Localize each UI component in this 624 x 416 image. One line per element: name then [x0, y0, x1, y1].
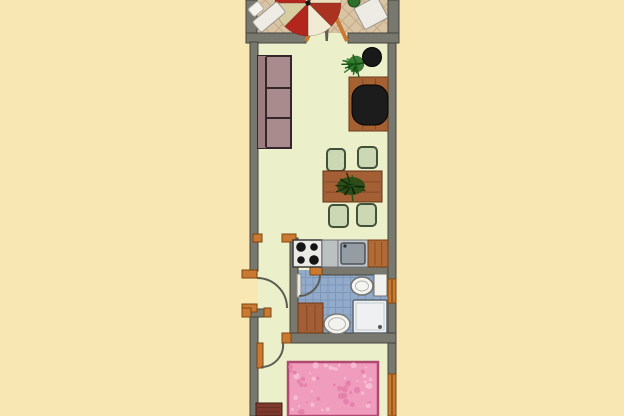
bathroom-cabinet [298, 303, 323, 333]
bed-texture-dot [349, 391, 352, 394]
bed-texture-dot [297, 380, 301, 384]
dining-chair-1 [327, 149, 345, 171]
floor-plan [0, 0, 624, 416]
bed-texture-dot [311, 390, 313, 392]
stove-burner-2 [310, 243, 318, 251]
balcony-parapet-right [348, 33, 399, 43]
bed-texture-dot [351, 362, 357, 368]
bed [288, 362, 378, 416]
dining-chair-2 [358, 147, 377, 168]
bed-texture-dot [367, 402, 369, 404]
bed-texture-dot [369, 378, 372, 381]
bathroom-bottom-wall [290, 333, 396, 343]
desk-chair [352, 85, 388, 125]
washbasin [324, 314, 350, 334]
bed-texture-dot [324, 364, 328, 368]
bed-texture-dot [293, 395, 298, 400]
kitchen-counter-wood [368, 240, 388, 267]
bed-texture-dot [344, 377, 346, 379]
stub-wall-cap-left [242, 308, 251, 317]
sofa-backrest [258, 56, 266, 148]
bed-texture-dot [290, 370, 293, 373]
bed-texture-dot [335, 367, 338, 370]
bed-texture-dot [333, 383, 336, 386]
balcony-plant [348, 0, 360, 7]
bed-texture-dot [321, 409, 324, 412]
corridor-jamb-left [253, 234, 262, 242]
dining-chair-3 [329, 205, 348, 227]
bed-texture-dot [301, 377, 305, 381]
entry-door-jamb-top [242, 270, 257, 278]
stove-burner-1 [296, 242, 306, 252]
bed-texture-dot [299, 383, 304, 388]
bed-texture-dot [361, 369, 365, 373]
bed-texture-dot [316, 397, 320, 401]
bed-texture-dot [341, 393, 347, 399]
dining-chair-4 [357, 204, 376, 226]
bedroom-door-jamb [282, 333, 291, 343]
bed-texture-dot [298, 405, 300, 407]
bed-texture-dot [309, 372, 311, 374]
bed-texture-dot [363, 374, 367, 378]
bed-texture-dot [337, 386, 342, 391]
bed-texture-dot [350, 402, 355, 407]
bed-texture-dot [312, 362, 318, 368]
bedroom-door-panel [257, 343, 263, 368]
bed-texture-dot [291, 408, 294, 411]
bed-texture-dot [367, 383, 373, 389]
patio-umbrella-pole [305, 0, 310, 5]
stove-burner-4 [309, 255, 319, 265]
bed-texture-dot [310, 403, 314, 407]
bed-texture-dot [311, 377, 316, 382]
bed-texture-dot [364, 380, 367, 383]
bed-texture-dot [326, 407, 330, 411]
shower-drain [378, 325, 382, 329]
bed-texture-dot [288, 364, 293, 369]
bed-texture-dot [356, 380, 358, 382]
bed-texture-dot [354, 387, 360, 393]
bed-texture-dot [342, 386, 348, 392]
bed-texture-dot [316, 377, 319, 380]
bed-texture-dot [304, 383, 308, 387]
toilet-cistern [374, 274, 387, 296]
sink-faucet [343, 244, 346, 247]
toilet-bowl [351, 277, 373, 295]
side-stool [363, 48, 382, 67]
bed-texture-dot [306, 401, 308, 403]
stove-burner-3 [297, 256, 305, 264]
patio-umbrella-panel [275, 0, 308, 3]
bed-texture-dot [365, 366, 367, 368]
bed-texture-dot [361, 391, 364, 394]
kitchen-counter [322, 240, 338, 267]
shower-tray [353, 300, 387, 333]
bed-texture-dot [328, 365, 333, 370]
screenshot-root [0, 0, 624, 416]
bed-texture-dot [339, 364, 341, 366]
bed-texture-dot [345, 381, 351, 387]
right-wall-upper [388, 43, 396, 279]
bed-texture-dot [343, 399, 349, 405]
dresser [256, 403, 282, 416]
patio-umbrella-panel [308, 0, 341, 3]
bed-texture-dot [369, 401, 372, 404]
bed-texture-dot [293, 371, 297, 375]
stub-wall-cap-right [264, 308, 271, 317]
bed-texture-dot [299, 409, 305, 415]
bathroom-door-panel [297, 274, 301, 297]
